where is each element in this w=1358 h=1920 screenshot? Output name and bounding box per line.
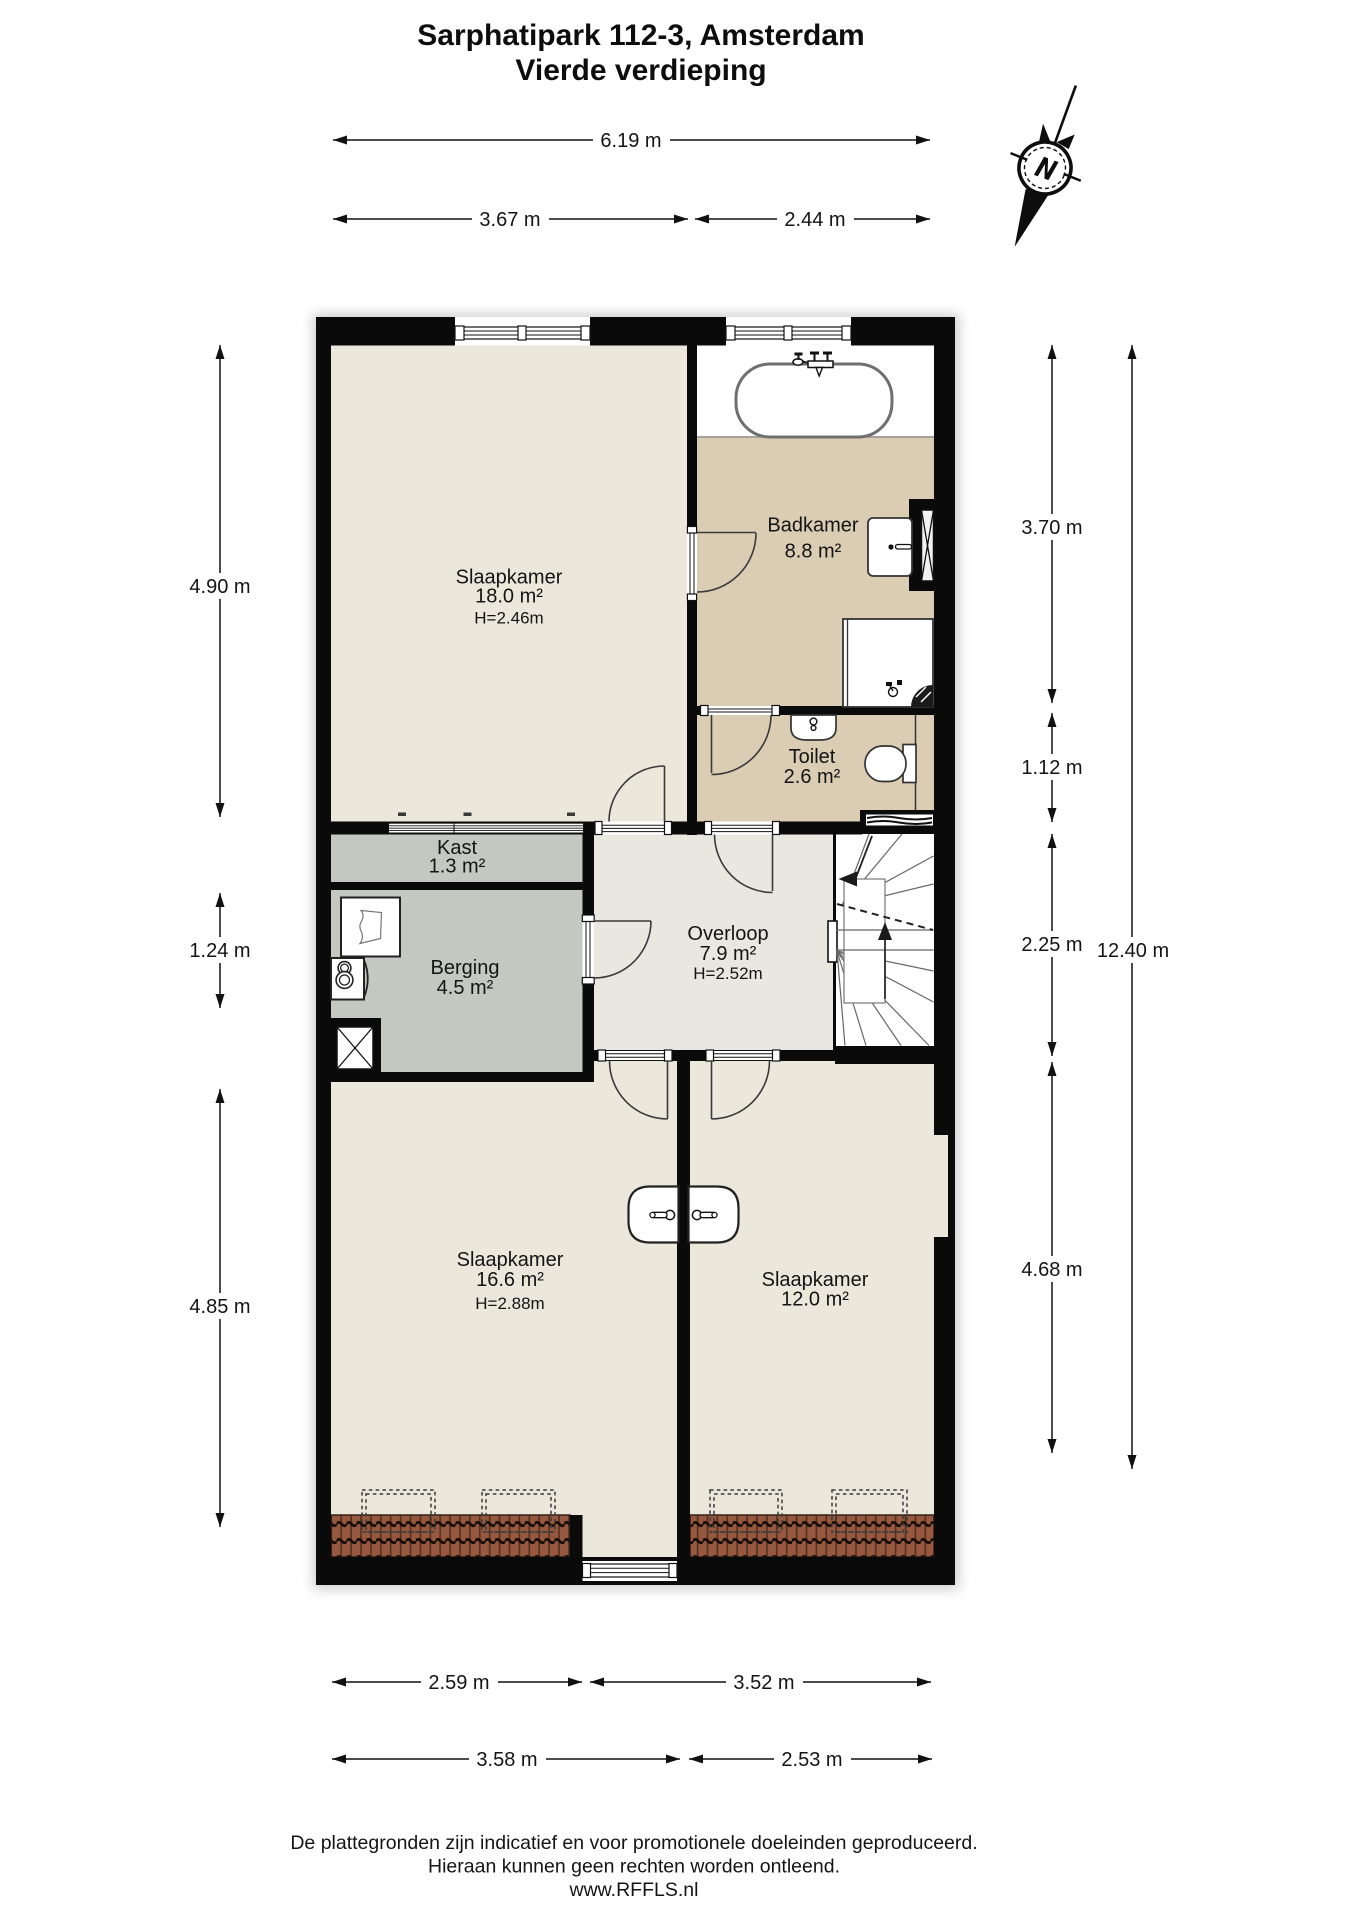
svg-text:4.5 m²: 4.5 m² <box>437 977 494 999</box>
svg-text:18.0 m²: 18.0 m² <box>475 586 543 608</box>
svg-text:12.40 m: 12.40 m <box>1097 940 1169 962</box>
svg-text:H=2.52m: H=2.52m <box>693 964 762 983</box>
svg-text:2.44 m: 2.44 m <box>784 209 845 231</box>
svg-text:Badkamer: Badkamer <box>767 515 858 537</box>
svg-text:Slaapkamer: Slaapkamer <box>457 1249 564 1271</box>
svg-text:2.53 m: 2.53 m <box>781 1749 842 1771</box>
svg-text:3.52 m: 3.52 m <box>733 1672 794 1694</box>
svg-text:3.67 m: 3.67 m <box>479 209 540 231</box>
svg-text:H=2.46m: H=2.46m <box>474 609 543 628</box>
svg-text:Toilet: Toilet <box>789 746 836 768</box>
svg-text:Overloop: Overloop <box>687 923 768 945</box>
svg-text:12.0 m²: 12.0 m² <box>781 1289 849 1311</box>
svg-text:16.6 m²: 16.6 m² <box>476 1269 544 1291</box>
svg-text:www.RFFLS.nl: www.RFFLS.nl <box>569 1879 699 1901</box>
svg-text:4.85 m: 4.85 m <box>189 1296 250 1318</box>
svg-text:6.19 m: 6.19 m <box>600 130 661 152</box>
svg-text:Hieraan kunnen geen rechten wo: Hieraan kunnen geen rechten worden ontle… <box>428 1856 840 1878</box>
svg-text:1.12 m: 1.12 m <box>1021 757 1082 779</box>
svg-text:4.90 m: 4.90 m <box>189 576 250 598</box>
svg-text:2.6 m²: 2.6 m² <box>784 766 841 788</box>
svg-text:Sarphatipark 112-3, Amsterdam: Sarphatipark 112-3, Amsterdam <box>417 19 864 52</box>
svg-text:8.8 m²: 8.8 m² <box>785 541 842 563</box>
svg-text:1.3 m²: 1.3 m² <box>429 856 486 878</box>
svg-text:2.59 m: 2.59 m <box>428 1672 489 1694</box>
svg-text:2.25 m: 2.25 m <box>1021 934 1082 956</box>
svg-text:De plattegronden zijn indicati: De plattegronden zijn indicatief en voor… <box>290 1832 977 1854</box>
svg-text:4.68 m: 4.68 m <box>1021 1259 1082 1281</box>
svg-text:3.58 m: 3.58 m <box>476 1749 537 1771</box>
svg-text:1.24 m: 1.24 m <box>189 940 250 962</box>
svg-text:Berging: Berging <box>431 957 500 979</box>
svg-text:7.9 m²: 7.9 m² <box>700 943 757 965</box>
svg-text:Vierde verdieping: Vierde verdieping <box>515 54 766 87</box>
svg-text:H=2.88m: H=2.88m <box>475 1294 544 1313</box>
svg-text:3.70 m: 3.70 m <box>1021 517 1082 539</box>
